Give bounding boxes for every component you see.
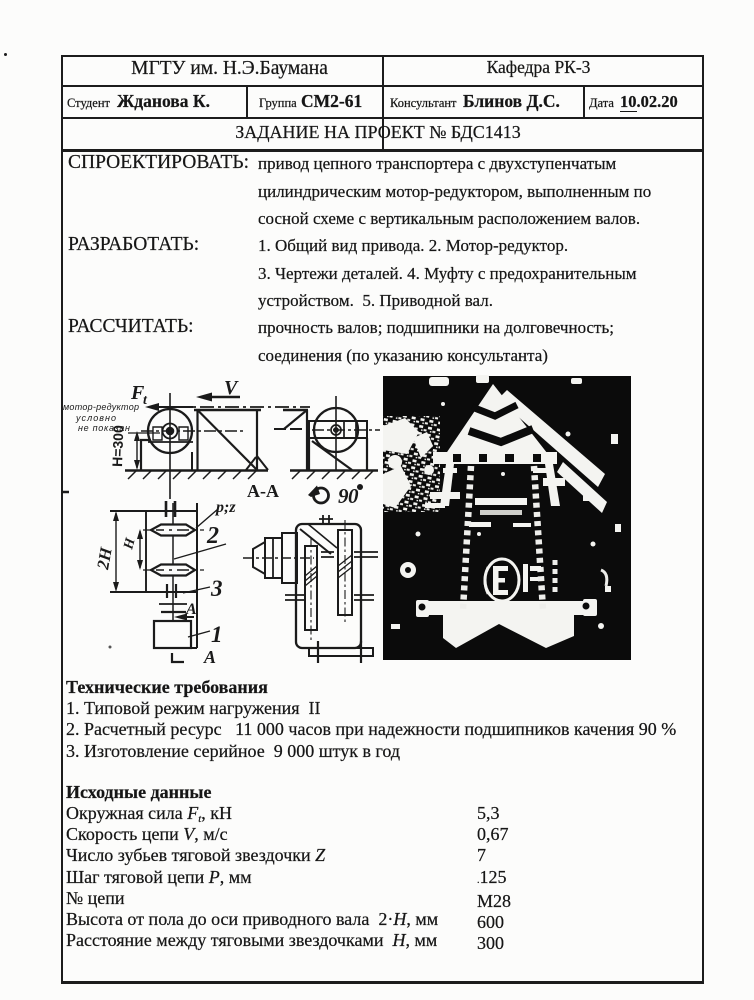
svg-text:H: H [121,536,139,552]
svg-text:2H: 2H [93,545,116,571]
svg-text:p;z: p;z [214,499,236,516]
svg-text:1: 1 [211,622,223,647]
svg-text:2: 2 [206,523,219,549]
svg-text:90: 90 [338,484,359,508]
svg-text:мотор-редуктор: мотор-редуктор [63,402,139,412]
svg-text:t: t [143,393,148,408]
svg-text:A: A [203,647,216,667]
svg-text:V: V [224,377,239,399]
svg-text:условно: условно [75,413,116,423]
svg-text:А-А: А-А [247,481,279,501]
svg-text:A: A [185,601,197,618]
svg-text:3: 3 [210,576,223,601]
svg-text:не показан: не показан [78,423,130,433]
